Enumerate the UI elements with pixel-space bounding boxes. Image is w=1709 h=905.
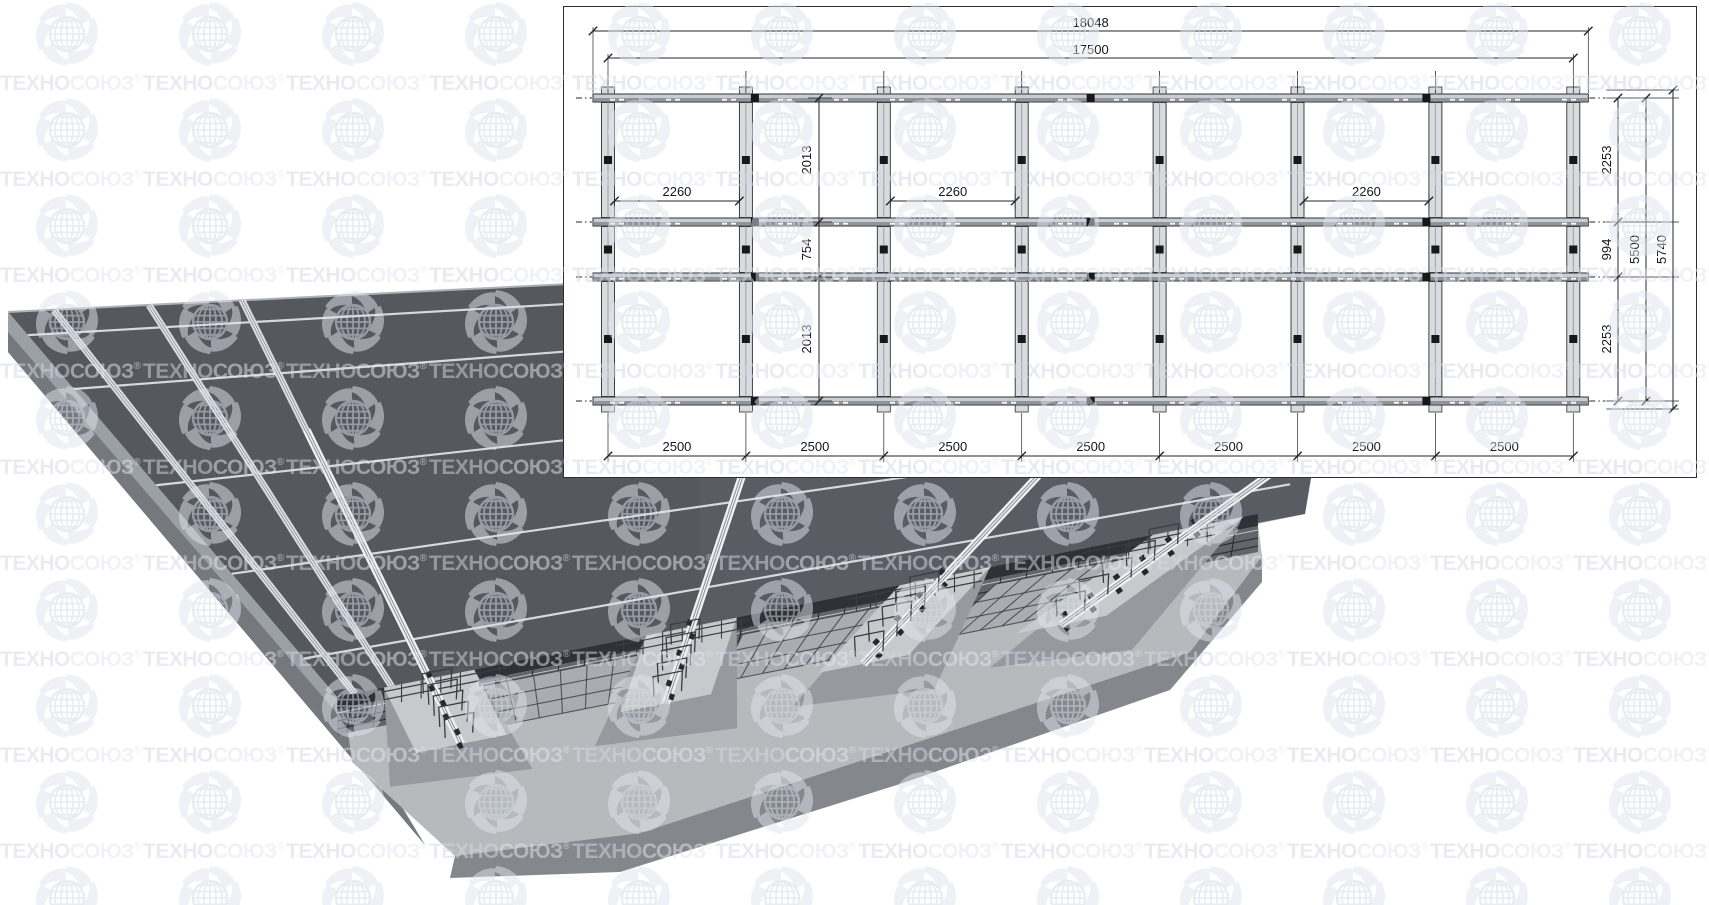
dim-label: 2500: [938, 439, 967, 454]
rail-connector: [1422, 94, 1430, 102]
rail-dash: [899, 402, 904, 404]
dim-label: 2500: [662, 439, 691, 454]
rail-connector: [1087, 94, 1095, 102]
rail-dash: [778, 223, 783, 225]
globe-swirl-icon: [1449, 576, 1545, 646]
rail-dash: [899, 278, 904, 280]
rail-dash: [1067, 278, 1072, 280]
rail-dash: [1002, 402, 1007, 404]
rail-dash: [1282, 278, 1287, 280]
dim-label: 2500: [1076, 439, 1105, 454]
globe-swirl-icon: [1592, 576, 1688, 646]
plan-post-tab: [739, 405, 752, 412]
rail-dash: [1515, 278, 1520, 280]
rail-dash: [619, 278, 624, 280]
watermark-tile: ТЕХНОСОЮЗ®: [1430, 576, 1573, 672]
post-connector: [604, 335, 612, 343]
rail-dash: [1459, 223, 1464, 225]
dim-label: 2500: [1352, 439, 1381, 454]
rail-dash: [843, 278, 848, 280]
rail-dash: [1338, 402, 1343, 404]
rail-connector: [1422, 218, 1430, 226]
rail-dash: [1123, 278, 1128, 280]
rail-dash: [1347, 402, 1352, 404]
rail-dash: [890, 402, 895, 404]
plan-post-tab: [877, 405, 890, 412]
rail-dash: [1459, 278, 1464, 280]
rail-dash: [610, 99, 615, 101]
rail-dash: [1002, 278, 1007, 280]
globe-swirl-icon: [1592, 672, 1688, 742]
rail-dash: [675, 278, 680, 280]
rail-dash: [1058, 99, 1063, 101]
plan-post-tab: [1291, 405, 1304, 412]
rail-dash: [843, 99, 848, 101]
dim-label: 5500: [1627, 235, 1642, 264]
globe-swirl-icon: [1449, 480, 1545, 550]
rail-dash: [1123, 223, 1128, 225]
rail-dash: [899, 223, 904, 225]
rail-dash: [787, 99, 792, 101]
rail-dash: [1347, 99, 1352, 101]
rail-dash: [1179, 99, 1184, 101]
rail-dash: [1235, 223, 1240, 225]
plan-group: 1804817500250025002500250025002500250022…: [576, 15, 1679, 462]
rail-dash: [1123, 402, 1128, 404]
globe-swirl-icon: [1592, 480, 1688, 550]
rail-dash: [1235, 278, 1240, 280]
rail-dash: [1515, 99, 1520, 101]
rail-dash: [778, 402, 783, 404]
rail-dash: [1291, 223, 1296, 225]
watermark-tile: ТЕХНОСОЮЗ®: [1573, 864, 1709, 905]
rail-dash: [610, 402, 615, 404]
rail-dash: [1403, 99, 1408, 101]
rail-dash: [834, 402, 839, 404]
dim-label: 2500: [1214, 439, 1243, 454]
rail-dash: [1179, 402, 1184, 404]
rail-dash: [1338, 223, 1343, 225]
watermark-tile: ТЕХНОСОЮЗ®: [1573, 480, 1709, 576]
rail-connector: [1087, 218, 1095, 226]
dim-label: 2253: [1599, 325, 1614, 354]
post-connector: [1569, 335, 1577, 343]
rail-dash: [1226, 278, 1231, 280]
post-connector: [1431, 335, 1439, 343]
rail-dash: [619, 99, 624, 101]
rail-dash: [1459, 99, 1464, 101]
rail-dash: [955, 402, 960, 404]
rail-dash: [1067, 223, 1072, 225]
rail-dash: [610, 223, 615, 225]
rail-dash: [1226, 223, 1231, 225]
rail-dash: [1282, 402, 1287, 404]
plan-drawing-panel: 1804817500250025002500250025002500250022…: [563, 6, 1697, 478]
rail-dash: [955, 223, 960, 225]
dim-label: 18048: [1073, 15, 1109, 30]
rail-dash: [1450, 402, 1455, 404]
watermark-brand: ТЕХНОСОЮЗ®: [1573, 740, 1709, 767]
rail-connector: [751, 273, 759, 281]
rail-dash: [1450, 223, 1455, 225]
watermark-brand: ТЕХНОСОЮЗ®: [1430, 836, 1571, 863]
dim-label: 2260: [1352, 184, 1381, 199]
rail-dash: [1571, 278, 1576, 280]
rail-dash: [722, 99, 727, 101]
rail-dash: [778, 278, 783, 280]
post-connector: [880, 246, 888, 254]
rail-dash: [1282, 223, 1287, 225]
rail-dash: [1506, 402, 1511, 404]
rail-connector: [1422, 273, 1430, 281]
rail-connector: [751, 397, 759, 405]
post-connector: [880, 156, 888, 164]
rail-dash: [1011, 99, 1016, 101]
rail-dash: [1506, 278, 1511, 280]
rail-connector: [751, 218, 759, 226]
rail-dash: [899, 99, 904, 101]
post-connector: [1018, 335, 1026, 343]
post-connector: [604, 156, 612, 164]
rail-dash: [619, 223, 624, 225]
post-connector: [1294, 156, 1302, 164]
watermark-brand: ТЕХНОСОЮЗ®: [1573, 644, 1709, 671]
rail-dash: [955, 278, 960, 280]
rail-dash: [1562, 223, 1567, 225]
rail-dash: [1571, 223, 1576, 225]
rail-dash: [610, 278, 615, 280]
watermark-brand: ТЕХНОСОЮЗ®: [1430, 548, 1571, 575]
dim-label: 2500: [1490, 439, 1519, 454]
post-connector: [1018, 246, 1026, 254]
rail-dash: [666, 278, 671, 280]
globe-swirl-icon: [1449, 672, 1545, 742]
rail-dash: [1114, 402, 1119, 404]
rail-dash: [1291, 278, 1296, 280]
watermark-brand: ТЕХНОСОЮЗ®: [1430, 644, 1571, 671]
post-connector: [742, 156, 750, 164]
dim-label: 2260: [938, 184, 967, 199]
rail-dash: [890, 278, 895, 280]
rail-dash: [946, 402, 951, 404]
watermark-tile: ТЕХНОСОЮЗ®: [1430, 768, 1573, 864]
post-connector: [1156, 335, 1164, 343]
watermark-tile: ТЕХНОСОЮЗ®: [1573, 768, 1709, 864]
page-root: 1804817500250025002500250025002500250022…: [0, 0, 1709, 905]
rail-dash: [1515, 402, 1520, 404]
rail-dash: [1291, 99, 1296, 101]
dim-label: 754: [799, 239, 814, 261]
post-connector: [1569, 156, 1577, 164]
rail-dash: [1562, 99, 1567, 101]
plan-post-tab: [602, 405, 615, 412]
post-connector: [1156, 246, 1164, 254]
rail-dash: [1011, 223, 1016, 225]
dim-label: 2500: [800, 439, 829, 454]
rail-dash: [675, 99, 680, 101]
rail-dash: [1347, 223, 1352, 225]
rail-dash: [666, 223, 671, 225]
watermark-tile: ТЕХНОСОЮЗ®: [1573, 576, 1709, 672]
rail-dash: [1338, 278, 1343, 280]
rail-dash: [1235, 402, 1240, 404]
rail-dash: [675, 402, 680, 404]
rail-dash: [1562, 402, 1567, 404]
post-connector: [880, 335, 888, 343]
rail-dash: [666, 99, 671, 101]
rail-dash: [731, 402, 736, 404]
rail-dash: [1114, 278, 1119, 280]
rail-dash: [1170, 278, 1175, 280]
rail-dash: [1403, 402, 1408, 404]
globe-swirl-icon: [1449, 768, 1545, 838]
plan-post-tab: [1153, 405, 1166, 412]
rail-dash: [1179, 278, 1184, 280]
rail-dash: [1403, 223, 1408, 225]
rail-dash: [1067, 99, 1072, 101]
rail-dash: [1291, 402, 1296, 404]
rail-connector: [1087, 397, 1095, 405]
rail-dash: [666, 402, 671, 404]
rail-dash: [1011, 402, 1016, 404]
rail-dash: [722, 402, 727, 404]
rail-dash: [843, 402, 848, 404]
globe-swirl-icon: [1592, 768, 1688, 838]
post-connector: [1294, 335, 1302, 343]
rail-dash: [946, 99, 951, 101]
rail-dash: [1226, 402, 1231, 404]
watermark-brand: ТЕХНОСОЮЗ®: [1573, 836, 1709, 863]
watermark-tile: ТЕХНОСОЮЗ®: [1430, 864, 1573, 905]
post-connector: [1018, 156, 1026, 164]
rail-dash: [1282, 99, 1287, 101]
rail-dash: [1067, 402, 1072, 404]
rail-dash: [1394, 278, 1399, 280]
rail-dash: [1058, 223, 1063, 225]
post-connector: [1569, 246, 1577, 254]
rail-dash: [1002, 99, 1007, 101]
rail-dash: [834, 223, 839, 225]
rail-dash: [731, 99, 736, 101]
dim-label: 17500: [1073, 42, 1109, 57]
watermark-tile: ТЕХНОСОЮЗ®: [1430, 480, 1573, 576]
rail-dash: [1123, 99, 1128, 101]
dim-label: 2013: [799, 325, 814, 354]
rail-dash: [787, 402, 792, 404]
watermark-brand: ТЕХНОСОЮЗ®: [1430, 740, 1571, 767]
rail-dash: [722, 223, 727, 225]
plan-post-tab: [1567, 405, 1580, 412]
rail-dash: [1450, 278, 1455, 280]
rail-dash: [1394, 99, 1399, 101]
rail-dash: [1058, 278, 1063, 280]
post-connector: [1156, 156, 1164, 164]
rail-dash: [834, 278, 839, 280]
rail-dash: [1571, 99, 1576, 101]
rail-dash: [1506, 223, 1511, 225]
rail-dash: [1002, 223, 1007, 225]
post-connector: [742, 335, 750, 343]
rail-dash: [1394, 223, 1399, 225]
rail-dash: [1058, 402, 1063, 404]
rail-dash: [843, 223, 848, 225]
post-connector: [604, 246, 612, 254]
post-connector: [1431, 156, 1439, 164]
dim-label: 2253: [1599, 146, 1614, 175]
rail-dash: [1450, 99, 1455, 101]
rail-dash: [1011, 278, 1016, 280]
rail-dash: [1114, 99, 1119, 101]
rail-dash: [787, 278, 792, 280]
dim-label: 5740: [1654, 235, 1669, 264]
plan-post-tab: [1429, 405, 1442, 412]
rail-dash: [1170, 402, 1175, 404]
rail-connector: [751, 94, 759, 102]
rail-dash: [675, 223, 680, 225]
rail-dash: [890, 99, 895, 101]
globe-swirl-icon: [1592, 864, 1688, 905]
rail-dash: [1338, 99, 1343, 101]
rail-dash: [722, 278, 727, 280]
rail-connector: [1422, 397, 1430, 405]
rail-dash: [1562, 278, 1567, 280]
rail-dash: [1179, 223, 1184, 225]
rail-dash: [731, 278, 736, 280]
dim-label: 2260: [662, 184, 691, 199]
plan-drawing: 1804817500250025002500250025002500250022…: [564, 7, 1694, 475]
rail-dash: [1170, 99, 1175, 101]
rail-dash: [890, 223, 895, 225]
rail-dash: [787, 223, 792, 225]
post-connector: [1294, 246, 1302, 254]
rail-dash: [1347, 278, 1352, 280]
rail-dash: [946, 278, 951, 280]
rail-dash: [1114, 223, 1119, 225]
dim-label: 994: [1599, 239, 1614, 261]
globe-swirl-icon: [1449, 864, 1545, 905]
post-connector: [742, 246, 750, 254]
rail-connector: [1087, 273, 1095, 281]
rail-dash: [1394, 402, 1399, 404]
post-connector: [1431, 246, 1439, 254]
rail-dash: [1403, 278, 1408, 280]
rail-dash: [1459, 402, 1464, 404]
rail-dash: [1506, 99, 1511, 101]
rail-dash: [1515, 223, 1520, 225]
rail-dash: [1170, 223, 1175, 225]
watermark-brand: ТЕХНОСОЮЗ®: [1573, 548, 1709, 575]
rail-dash: [731, 223, 736, 225]
rail-dash: [778, 99, 783, 101]
rail-dash: [946, 223, 951, 225]
plan-post-tab: [1015, 405, 1028, 412]
rail-dash: [1226, 99, 1231, 101]
watermark-tile: ТЕХНОСОЮЗ®: [1430, 672, 1573, 768]
rail-dash: [955, 99, 960, 101]
rail-dash: [834, 99, 839, 101]
rail-dash: [619, 402, 624, 404]
dim-label: 2013: [799, 146, 814, 175]
rail-dash: [1235, 99, 1240, 101]
rail-dash: [1571, 402, 1576, 404]
watermark-tile: ТЕХНОСОЮЗ®: [1573, 672, 1709, 768]
